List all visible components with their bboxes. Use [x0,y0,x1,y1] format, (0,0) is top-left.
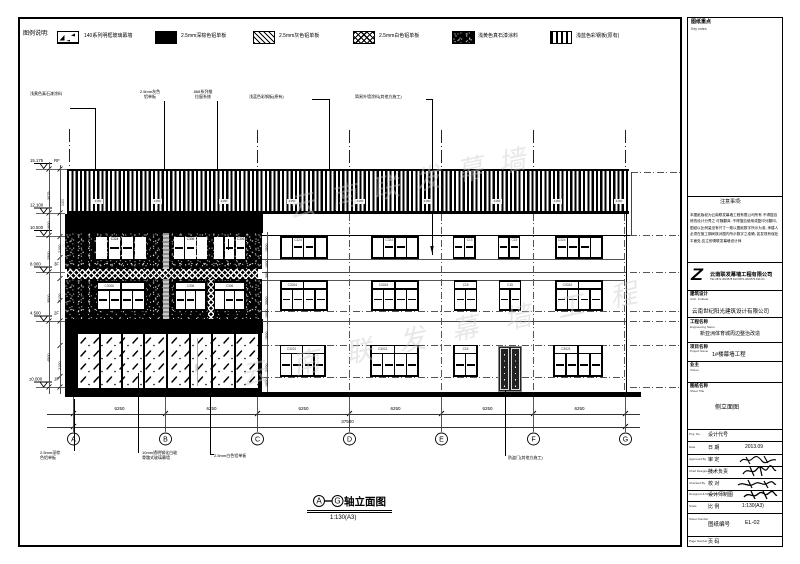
svg-text:E: E [439,437,444,444]
svg-text:±0.000: ±0.000 [29,377,43,382]
svg-text:C: C [255,437,260,444]
svg-text:8.000: 8.000 [30,262,41,267]
svg-text:D: D [347,437,352,444]
svg-text:B: B [163,437,168,444]
svg-text:A: A [316,497,322,506]
svg-text:F: F [531,437,535,444]
svg-text:G: G [623,437,628,444]
svg-text:4.500: 4.500 [30,311,41,316]
svg-text:G: G [334,497,340,506]
